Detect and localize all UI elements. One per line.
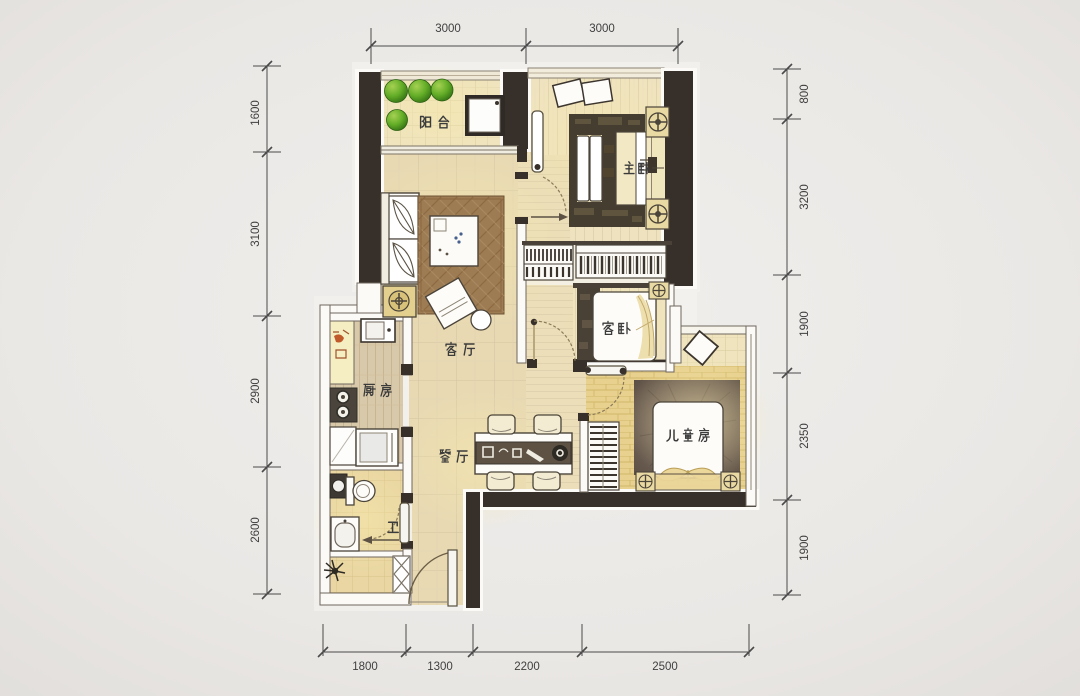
svg-text:1300: 1300 bbox=[427, 661, 453, 673]
svg-text:1600: 1600 bbox=[250, 100, 262, 126]
svg-text:1800: 1800 bbox=[352, 661, 378, 673]
svg-text:3000: 3000 bbox=[435, 23, 461, 35]
svg-text:1900: 1900 bbox=[799, 535, 811, 561]
svg-text:2500: 2500 bbox=[652, 661, 678, 673]
svg-text:2600: 2600 bbox=[250, 517, 262, 543]
svg-text:2900: 2900 bbox=[250, 378, 262, 404]
svg-text:3200: 3200 bbox=[799, 184, 811, 210]
svg-text:3100: 3100 bbox=[250, 221, 262, 247]
svg-text:800: 800 bbox=[799, 84, 811, 103]
svg-text:2350: 2350 bbox=[799, 423, 811, 449]
svg-text:3000: 3000 bbox=[589, 23, 615, 35]
svg-text:2200: 2200 bbox=[514, 661, 540, 673]
svg-text:1900: 1900 bbox=[799, 311, 811, 337]
